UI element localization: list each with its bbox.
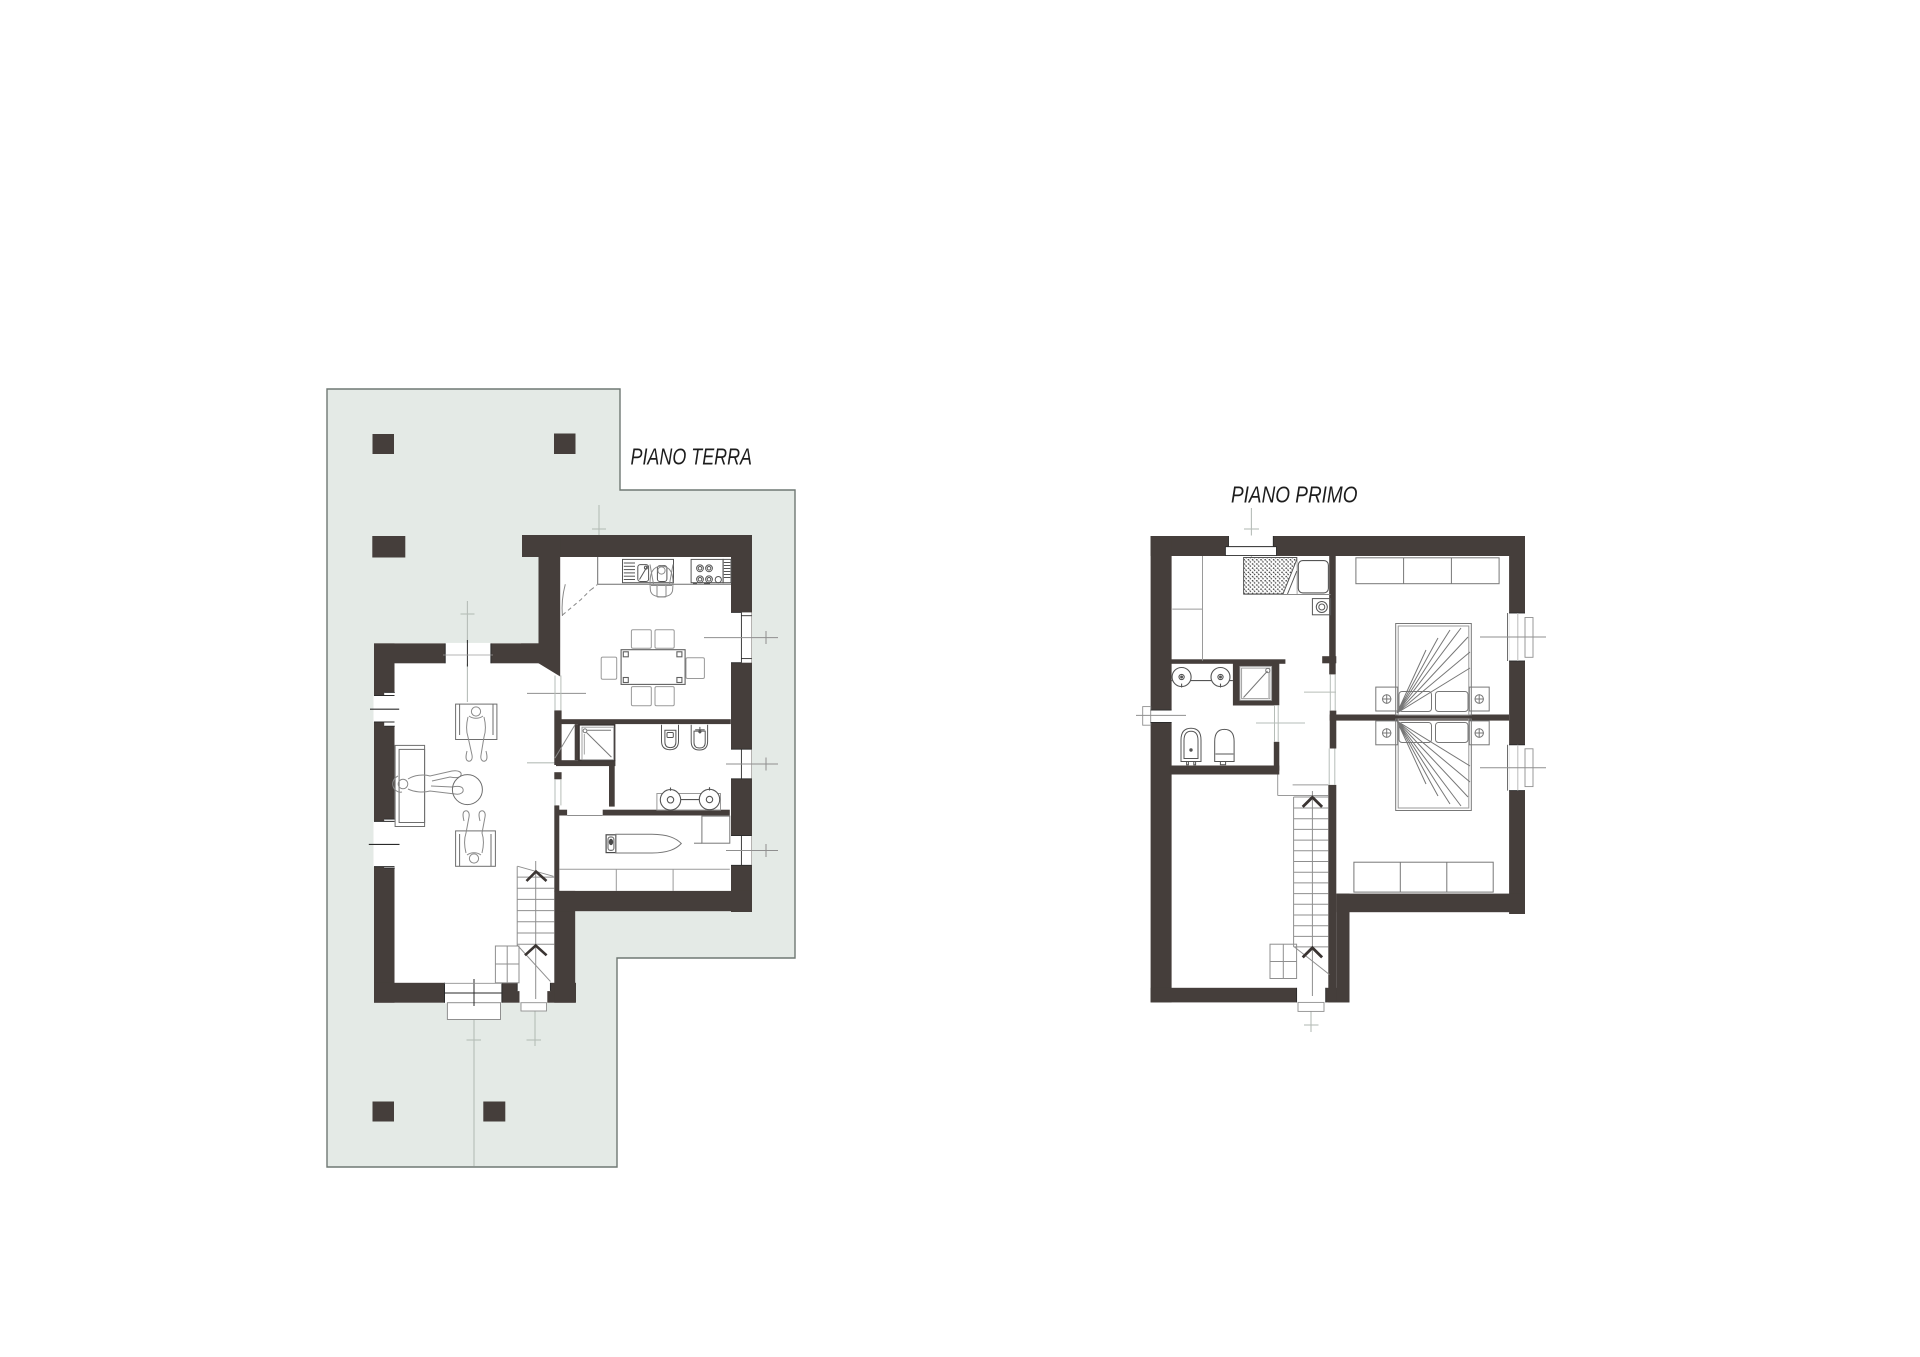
svg-text:PIANO TERRA: PIANO TERRA <box>631 444 753 470</box>
svg-text:PIANO PRIMO: PIANO PRIMO <box>1231 482 1358 508</box>
